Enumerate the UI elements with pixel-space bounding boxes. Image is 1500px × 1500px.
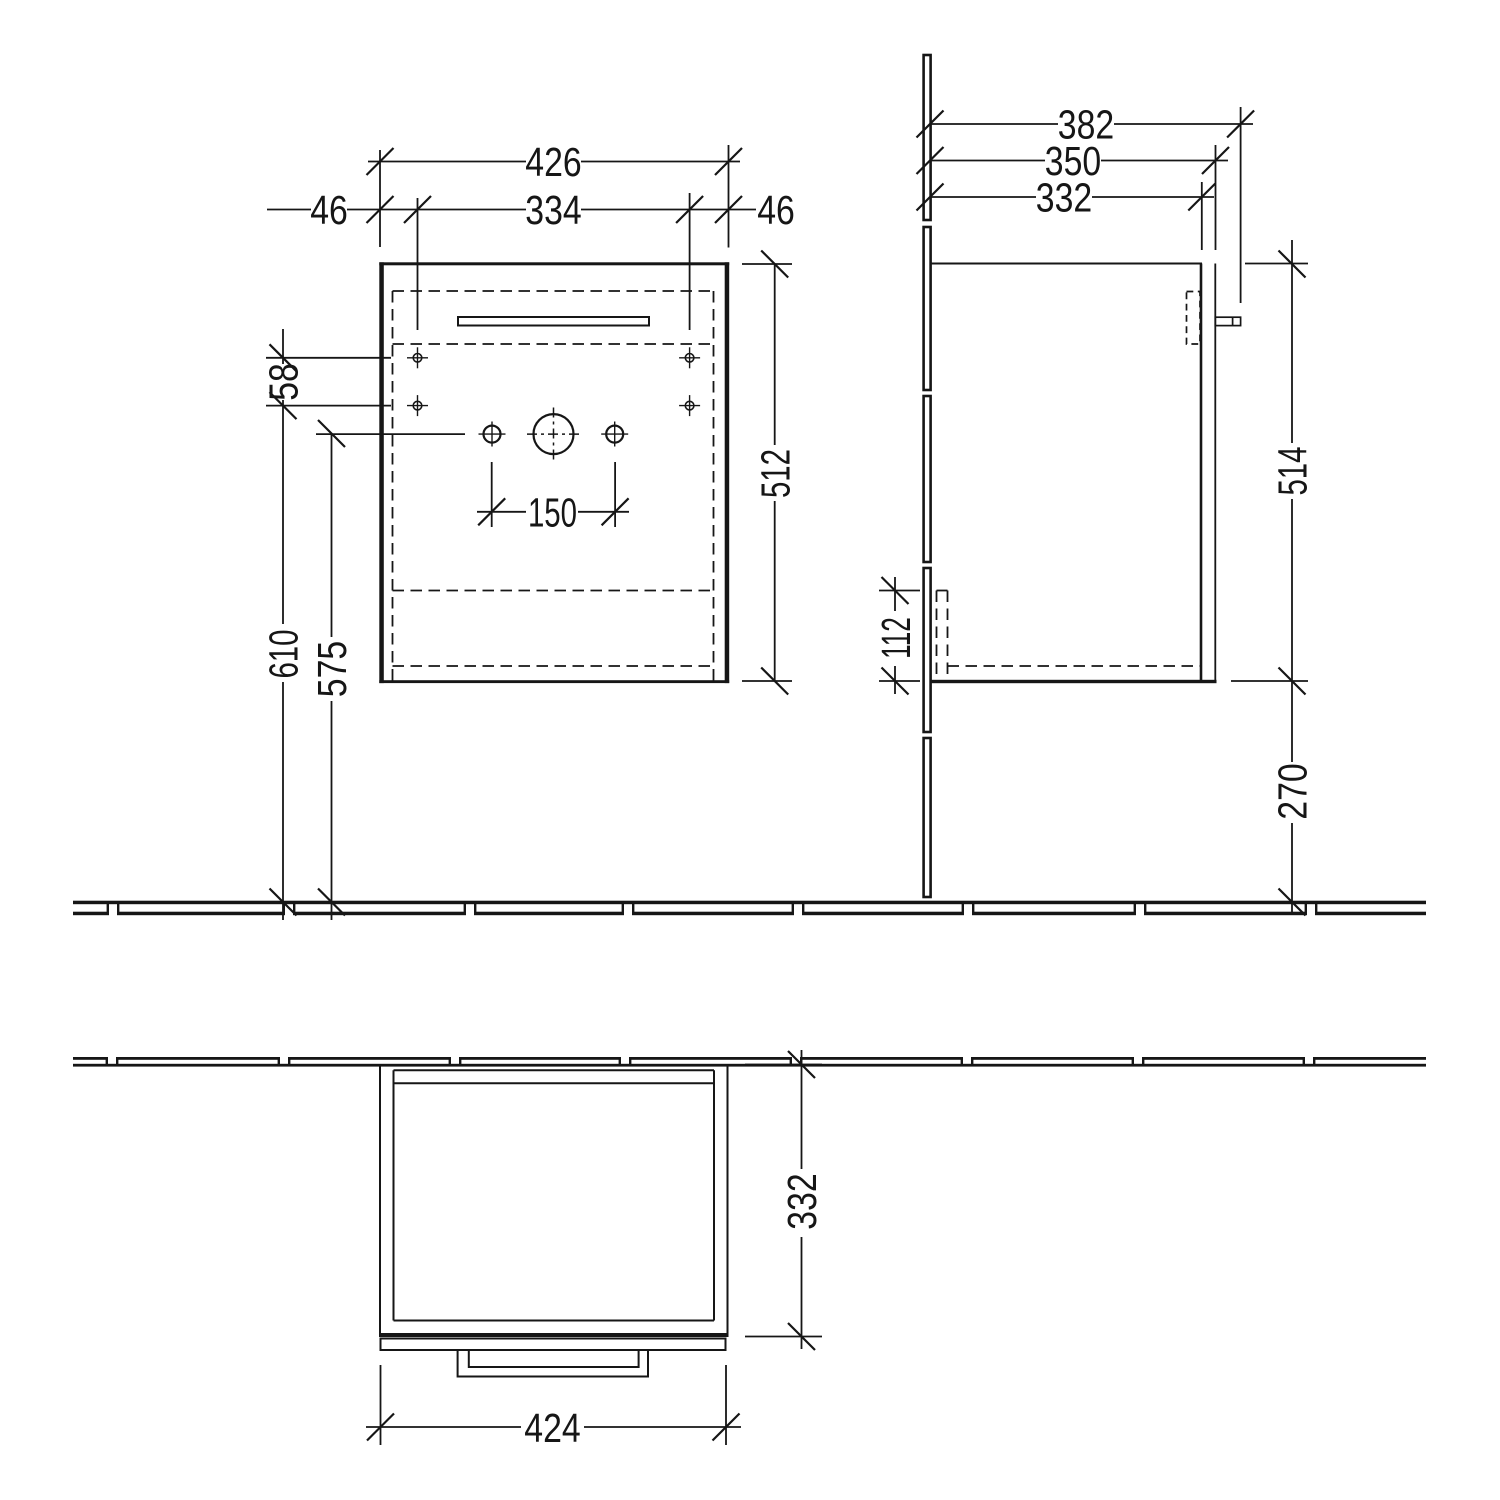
svg-text:334: 334 [525, 187, 581, 233]
svg-text:112: 112 [873, 617, 919, 659]
svg-text:424: 424 [524, 1405, 580, 1451]
svg-text:58: 58 [261, 363, 307, 401]
svg-text:575: 575 [309, 641, 355, 697]
svg-text:610: 610 [261, 629, 307, 678]
svg-text:512: 512 [753, 449, 799, 498]
svg-text:46: 46 [310, 187, 348, 233]
svg-text:150: 150 [528, 489, 577, 535]
svg-text:332: 332 [779, 1173, 825, 1229]
svg-text:270: 270 [1270, 763, 1316, 819]
svg-text:332: 332 [1036, 175, 1092, 221]
svg-text:426: 426 [525, 139, 581, 185]
svg-text:514: 514 [1270, 446, 1316, 495]
svg-text:46: 46 [757, 187, 795, 233]
